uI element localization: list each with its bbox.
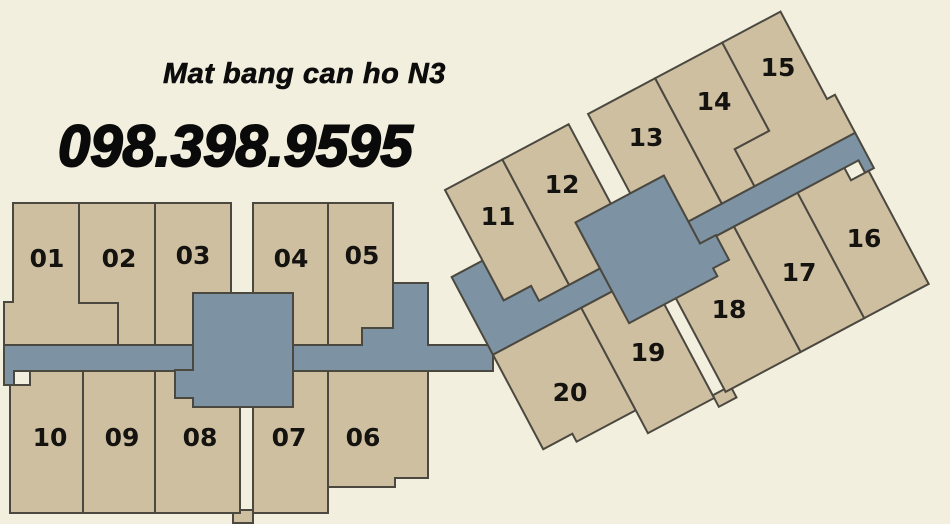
unit-label-12: 12 xyxy=(545,170,580,199)
left-wing xyxy=(4,203,493,523)
unit-label-15: 15 xyxy=(761,53,796,82)
unit-label-19: 19 xyxy=(631,338,666,367)
unit-label-03: 03 xyxy=(176,241,211,270)
unit-label-18: 18 xyxy=(712,295,747,324)
unit-label-06: 06 xyxy=(346,423,381,452)
unit-label-16: 16 xyxy=(847,224,882,253)
unit-label-14: 14 xyxy=(697,87,732,116)
unit-label-04: 04 xyxy=(274,244,309,273)
page-title: Mat bang can ho N3 xyxy=(163,60,446,89)
floor-plan-svg: 01 02 03 04 05 06 07 08 09 10 11 12 13 1… xyxy=(0,0,950,524)
unit-label-20: 20 xyxy=(553,378,588,407)
unit-label-02: 02 xyxy=(102,244,137,273)
unit-label-13: 13 xyxy=(629,123,664,152)
phone-number: 098.398.9595 xyxy=(58,118,413,176)
lobby-core-left xyxy=(175,293,293,407)
unit-label-07: 07 xyxy=(272,423,307,452)
unit-label-10: 10 xyxy=(33,423,68,452)
unit-shape-05 xyxy=(328,203,393,345)
unit-label-01: 01 xyxy=(30,244,65,273)
unit-label-09: 09 xyxy=(105,423,140,452)
unit-label-17: 17 xyxy=(782,258,817,287)
floor-plan-image: 01 02 03 04 05 06 07 08 09 10 11 12 13 1… xyxy=(0,0,950,524)
unit-label-11: 11 xyxy=(481,202,516,231)
unit-label-05: 05 xyxy=(345,241,380,270)
unit-label-08: 08 xyxy=(183,423,218,452)
